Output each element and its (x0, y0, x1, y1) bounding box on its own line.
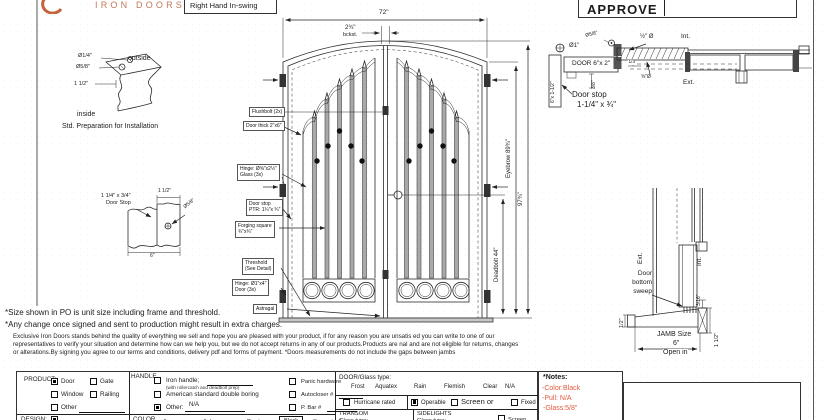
sill-ext-label: Ext. (637, 253, 644, 264)
prep-one-half: 1 1/2" (74, 81, 88, 87)
note-size: *Size shown in PO is unit size including… (5, 309, 220, 318)
sill-height-dim: 1 1/2" (714, 333, 720, 347)
color-black-selected[interactable]: Black (279, 416, 303, 420)
handle-american-checkbox[interactable] (154, 391, 161, 398)
left-leaf-rings (304, 282, 374, 298)
fine-print-1: Exclusive Iron Doors stands behind the q… (13, 334, 495, 341)
hurricane-label: Hurricane rated (354, 400, 395, 407)
note-changes: *Any change once signed and sent to prod… (5, 321, 282, 330)
handle-label: HANDLE (131, 374, 157, 381)
head-dia-five-eighths: Ø5/8" (585, 31, 599, 39)
callout-hinge-glass-l2: Glass (3x) (240, 172, 277, 178)
doorstop-dia: Ø5/8" (183, 198, 196, 210)
handle-other-line[interactable] (185, 411, 245, 412)
doorstop-name: Door Stop (106, 200, 131, 206)
screen-checkbox[interactable] (451, 399, 458, 406)
head-half-dia: ½" Ø (640, 34, 653, 41)
callout-flushbolt-text: Flushbolt (2x) (252, 109, 282, 115)
product-window-checkbox[interactable] (51, 391, 58, 398)
head-ext-label: Ext. (683, 79, 694, 86)
swing-direction-label: Right Hand In-swing (184, 0, 277, 14)
operable-label: Operable (421, 400, 446, 407)
doorstop-size: 1 1/4" x 3/4" (101, 193, 131, 199)
overall-height-dim: 97¾" (518, 192, 525, 206)
sill-jamb-l1: JAMB Size (657, 331, 691, 339)
callout-astragal: Astragal (253, 304, 277, 314)
approve-box: APPROVE (578, 0, 797, 18)
order-note-color: -Color:Black (542, 385, 580, 393)
glass-type-label: DOOR/Glass type: (339, 375, 391, 382)
order-notes-box: *Notes: -Color:Black -Pull: N/A -Glass:5… (538, 371, 623, 420)
eyebrow-dim: Eyebrow 89¾" (506, 139, 513, 178)
callout-hinge-door: Hinge: Ø1"x4" Door (3x) (232, 279, 269, 296)
screen-label: Screen or (461, 398, 494, 406)
callout-threshold-l2: (See Detail) (245, 266, 271, 272)
glass-type-na[interactable]: N/A (505, 384, 515, 391)
prep-dia-five-eighths: Ø5/8" (76, 64, 90, 70)
callout-hinge-glass: Hinge: Ø⅝"x2½" Glass (3x) (237, 164, 280, 181)
clavos-dots (314, 128, 456, 163)
autocloser-label: Autocloser # (301, 392, 333, 398)
head-jamb-size: 6"x 1-1/2" (551, 81, 557, 103)
panic-checkbox[interactable] (289, 378, 296, 385)
signature-box[interactable] (623, 382, 801, 420)
sheet-border (37, 0, 814, 420)
callout-door-stop-l2: PTR: 1¼"x ¾" (249, 207, 280, 213)
handle-other-checkbox[interactable] (154, 404, 161, 411)
callout-threshold: Threshold (See Detail) (242, 258, 274, 275)
order-note-glass: -Glass:5/8" (543, 405, 577, 413)
approve-divider (664, 0, 665, 16)
doorstop-width: 6" (150, 254, 155, 260)
sill-int-label: Int. (696, 257, 703, 266)
sidelights-screen-label: Screen (508, 417, 526, 420)
transom-label: TRANSOM (339, 411, 368, 417)
drawing-sheet: IRON DOORS Right Hand In-swing APPROVE Ø… (0, 0, 826, 420)
glass-type-frost[interactable]: Frost (351, 384, 365, 391)
head-int-label: Int. (681, 33, 690, 40)
head-dia-one: Ø1" (569, 43, 579, 50)
callout-door-thick: Door thick 2"x6" (243, 121, 285, 131)
sill-sweep-l2: bottom (620, 278, 652, 287)
sill-jamb-l2: 6" (673, 340, 679, 348)
callout-flushbolt: Flushbolt (2x) (249, 107, 285, 117)
glass-type-clear[interactable]: Clear (483, 384, 497, 391)
panic-label: Panic hardware (301, 379, 341, 385)
brand-logo-icon (36, 0, 66, 14)
handle-iron-checkbox[interactable] (154, 377, 161, 384)
prep-caption: Std. Preparation for Installation (62, 123, 158, 131)
fine-print-3: or alterations.By signing you agree to o… (13, 350, 455, 357)
technical-drawing-canvas (0, 0, 826, 420)
handle-other-value[interactable]: N/A (189, 402, 199, 409)
handle-american-label: American standard double boring (166, 392, 259, 399)
product-door-label: Door (61, 379, 75, 386)
product-other-line[interactable] (79, 412, 125, 413)
prep-outside-label: outside (128, 55, 151, 63)
product-gate-checkbox[interactable] (90, 378, 97, 385)
glass-type-rain[interactable]: Rain (414, 384, 426, 391)
product-railing-label: Railing (100, 392, 119, 399)
product-door-checkbox[interactable] (51, 378, 58, 385)
door-stop-detail-drawing (128, 195, 185, 256)
sidelights-screen-checkbox[interactable] (498, 415, 505, 420)
design-label: DESIGN: (21, 417, 47, 420)
callout-door-thick-text: Door thick 2"x6" (246, 123, 282, 129)
right-leaf-bars (405, 61, 459, 278)
callout-forging-l2: ¾"x¾" (238, 229, 272, 235)
left-leaf-bars (313, 61, 367, 278)
handle-other-label: Other: (166, 405, 184, 412)
deadbolt-dim: Deadbolt 44" (494, 248, 501, 283)
head-doorstop-l2: 1-1/4" x ¾" (577, 101, 616, 110)
brand-name: IRON DOORS (95, 1, 185, 11)
head-quarter-dim: 1/4" (628, 60, 637, 65)
right-leaf-rings (399, 282, 469, 298)
pbar-checkbox[interactable] (289, 404, 296, 411)
product-window-label: Window (61, 392, 83, 399)
sill-jamb-l3: Open in (663, 349, 688, 357)
product-other-label: Other (61, 405, 77, 412)
callout-forging-square: Forging square ¾"x¾" (235, 221, 275, 238)
swing-direction-text: Right Hand In-swing (190, 2, 258, 10)
product-railing-checkbox[interactable] (90, 391, 97, 398)
head-door-size-label: DOOR 6"x 2" (572, 60, 610, 67)
sill-sweep-l1: Door (620, 269, 652, 278)
sill-sweep-l3: sweep (620, 287, 652, 296)
fixed-label: Fixed (521, 400, 536, 407)
product-other-checkbox[interactable] (51, 404, 58, 411)
head-five-eighths-dia: ⅝"Ø (641, 75, 651, 81)
autocloser-checkbox[interactable] (289, 391, 296, 398)
order-notes-title: *Notes: (543, 374, 568, 382)
operable-checkbox[interactable] (411, 399, 418, 406)
glass-type-aquatex[interactable]: Aquatex (375, 384, 397, 391)
head-doorstop-l1: Door stop (572, 91, 607, 100)
sidelights-label: SIDELIGHTS (417, 411, 451, 417)
sill-gap-dim: 3/16" (697, 294, 703, 306)
callout-door-stop: Door stop PTR: 1¼"x ¾" (246, 199, 283, 216)
prep-dia-quarter: Ø1/4" (78, 53, 92, 59)
prep-inside-label: inside (77, 111, 95, 119)
handle-iron-note: (with rollercatch and deadbolt prep) (166, 385, 239, 390)
color-label: COLOR (133, 417, 155, 420)
callout-hinge-door-l2: Door (3x) (235, 287, 266, 293)
order-form: PRODUCT: Door Gate Window Railing Other … (16, 371, 538, 420)
pbar-label: P. Bar # (301, 405, 321, 411)
door-elevation-drawing (263, 18, 532, 322)
sill-sweep-label: Door bottom sweep (620, 269, 652, 296)
head-three-eighths: 3/8" (592, 80, 598, 89)
fixed-checkbox[interactable] (511, 399, 518, 406)
doorstop-dim: 1 1/2" (158, 189, 171, 195)
elevation-width-dim: 72" (379, 9, 389, 16)
callout-astragal-text: Astragal (256, 306, 274, 312)
glass-type-flemish[interactable]: Flemish (444, 384, 465, 391)
handle-iron-label: Iron handle; (166, 378, 199, 385)
elevation-backset-dim: 2¾" (345, 25, 355, 32)
design-checkbox[interactable] (51, 416, 58, 420)
fine-print-2: representatives to verify your situation… (13, 342, 518, 349)
order-note-pull: -Pull: N/A (542, 395, 572, 403)
product-gate-label: Gate (100, 379, 114, 386)
hurricane-checkbox[interactable] (343, 399, 350, 406)
approve-label: APPROVE (587, 3, 658, 17)
sill-half-dim: 1/2" (619, 318, 625, 328)
elevation-backset-label: bckst. (343, 32, 357, 38)
